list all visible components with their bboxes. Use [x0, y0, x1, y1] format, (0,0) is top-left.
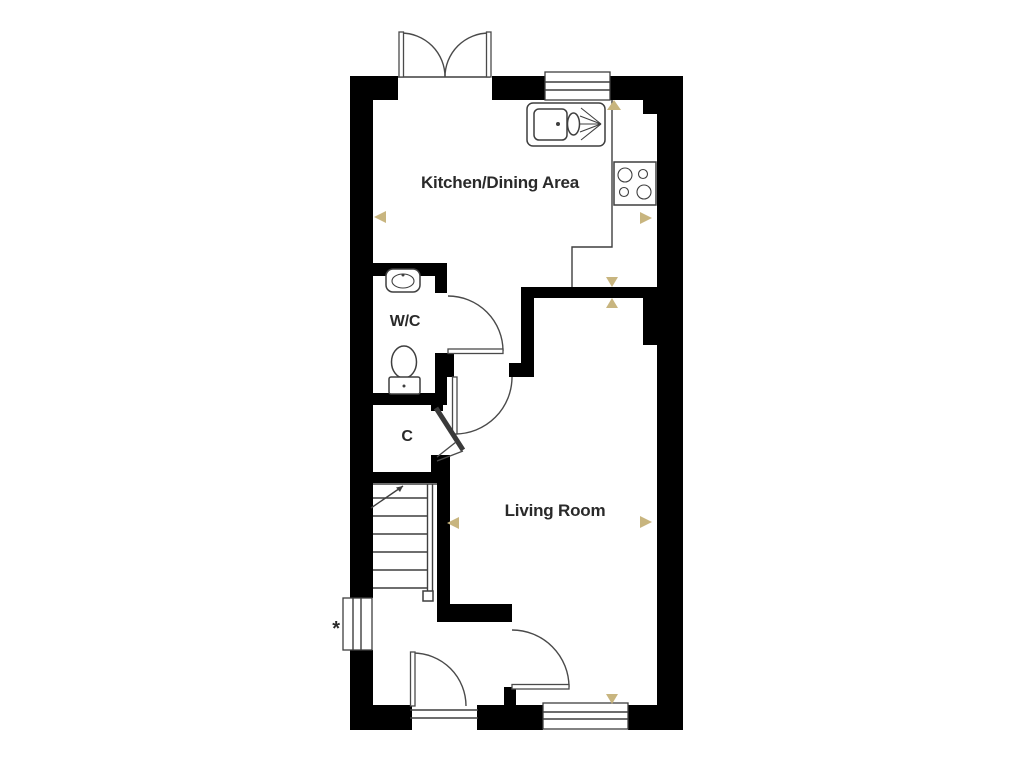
- floorplan-drawing: [0, 0, 1024, 768]
- window-note-asterisk: *: [328, 618, 344, 641]
- french-doors: [398, 32, 491, 77]
- front-door: [410, 652, 478, 718]
- living-room-window: [543, 703, 628, 729]
- kitchen-window: [545, 72, 610, 100]
- room-label-wc: W/C: [378, 313, 432, 331]
- wc-door: [448, 296, 503, 354]
- toilet-icon: [389, 346, 420, 394]
- floorplan-canvas: Kitchen/Dining Area W/C C Living Room *: [0, 0, 1024, 768]
- room-label-kitchen-dining: Kitchen/Dining Area: [400, 173, 600, 193]
- living-room-top-door: [453, 377, 513, 434]
- basin-icon: [386, 269, 420, 292]
- hob-icon: [614, 162, 656, 205]
- room-label-cupboard: C: [394, 428, 420, 446]
- room-label-living-room: Living Room: [475, 501, 635, 521]
- hall-side-window: [343, 598, 372, 650]
- sink-drainer-icon: [527, 103, 605, 146]
- staircase: [371, 484, 437, 601]
- hall-living-door: [512, 630, 569, 689]
